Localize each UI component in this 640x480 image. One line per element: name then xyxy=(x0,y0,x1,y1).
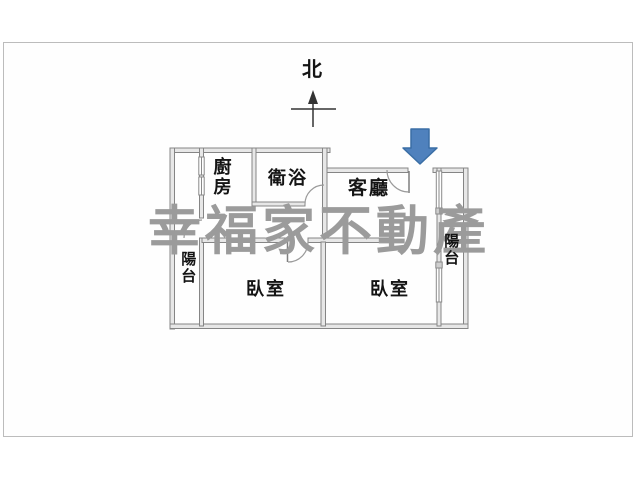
room-label-bedroom-left: 臥室 xyxy=(246,280,286,299)
agency-watermark: 幸福家不動產 xyxy=(148,204,490,260)
room-label-bathroom: 衛浴 xyxy=(268,169,308,188)
room-label-living-room: 客廳 xyxy=(348,179,390,200)
north-arrow-icon xyxy=(291,90,336,127)
room-label-kitchen: 廚房 xyxy=(211,157,230,197)
room-label-balcony-right: 陽台 xyxy=(442,233,458,267)
north-label: 北 xyxy=(302,60,324,82)
room-label-bedroom-right: 臥室 xyxy=(370,280,410,299)
entrance-arrow-icon xyxy=(403,129,437,164)
floorplan-image: 幸福家不動產 北 廚房 衛浴 客廳 臥室 臥室 陽台 陽台 xyxy=(0,0,640,480)
room-label-balcony-left: 陽台 xyxy=(179,251,195,285)
